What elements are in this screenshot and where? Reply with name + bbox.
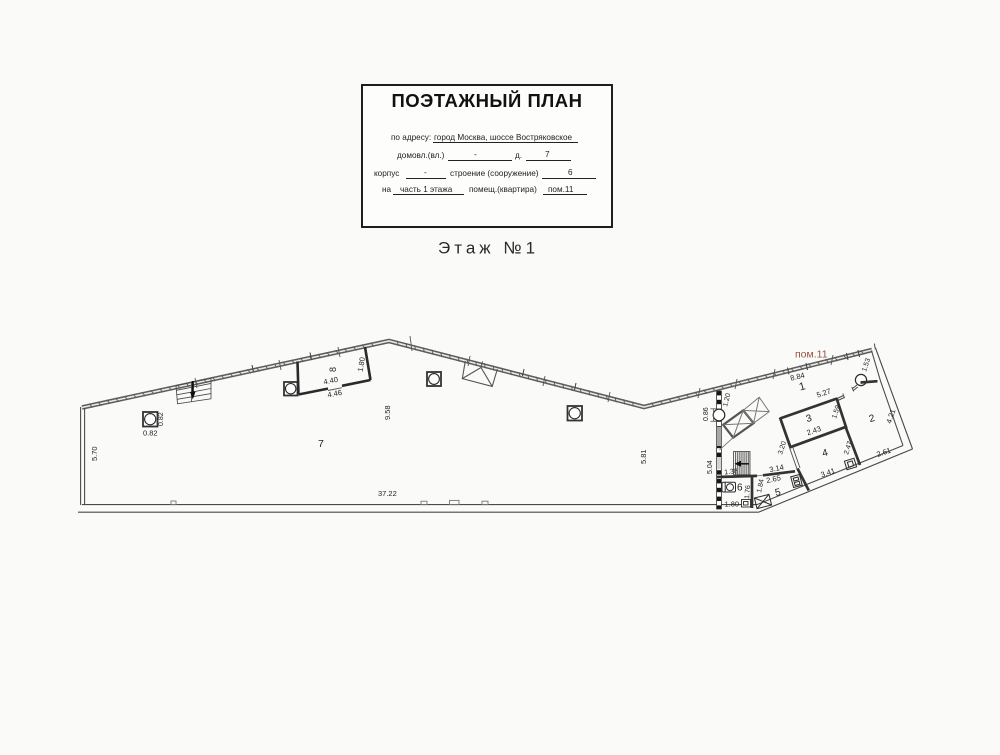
svg-text:пом.11: пом.11 <box>795 349 828 361</box>
svg-text:д.: д. <box>515 151 522 160</box>
svg-text:5.27: 5.27 <box>815 386 832 399</box>
svg-text:7: 7 <box>318 438 324 450</box>
svg-text:5.81: 5.81 <box>639 449 648 464</box>
svg-text:37.22: 37.22 <box>378 489 397 498</box>
svg-text:на: на <box>382 185 392 194</box>
svg-text:6: 6 <box>568 168 573 177</box>
svg-text:3.20: 3.20 <box>777 440 788 455</box>
svg-text:часть 1 этажа: часть 1 этажа <box>400 185 453 194</box>
svg-text:9.58: 9.58 <box>383 405 392 420</box>
svg-text:1.20: 1.20 <box>722 392 732 407</box>
svg-text:2: 2 <box>868 413 877 425</box>
svg-text:-: - <box>474 150 477 159</box>
svg-text:8: 8 <box>328 367 338 372</box>
svg-text:4.40: 4.40 <box>323 375 339 387</box>
svg-text:1.53: 1.53 <box>861 357 872 372</box>
svg-text:6: 6 <box>737 483 743 494</box>
svg-text:2.65: 2.65 <box>765 473 781 485</box>
svg-text:город Москва, шоссе Востряковс: город Москва, шоссе Востряковское <box>434 133 573 142</box>
svg-text:1.80: 1.80 <box>725 500 740 509</box>
svg-text:0.82: 0.82 <box>158 412 165 426</box>
svg-text:1: 1 <box>798 380 807 393</box>
svg-text:пом.11: пом.11 <box>548 185 574 194</box>
svg-text:по адресу:: по адресу: <box>391 133 431 142</box>
svg-text:1.80: 1.80 <box>356 356 367 372</box>
svg-text:-: - <box>424 168 427 177</box>
svg-text:5.70: 5.70 <box>90 446 99 461</box>
svg-text:4: 4 <box>821 447 830 459</box>
svg-text:3.41: 3.41 <box>819 466 836 479</box>
svg-text:2.61: 2.61 <box>875 446 892 459</box>
svg-text:7: 7 <box>545 150 550 159</box>
svg-text:корпус: корпус <box>374 169 399 178</box>
svg-text:0.82: 0.82 <box>143 429 158 438</box>
svg-text:4.46: 4.46 <box>327 388 343 400</box>
svg-text:3: 3 <box>805 413 814 425</box>
svg-text:5: 5 <box>774 487 782 499</box>
svg-text:домовл.(вл.): домовл.(вл.) <box>397 151 445 160</box>
svg-text:5.04: 5.04 <box>707 460 714 474</box>
svg-text:0.86: 0.86 <box>703 407 710 421</box>
svg-text:1.84: 1.84 <box>756 479 766 494</box>
svg-text:строение (сооружение): строение (сооружение) <box>450 169 539 178</box>
svg-text:Этаж №1: Этаж №1 <box>438 239 539 258</box>
svg-text:ПОЭТАЖНЫЙ ПЛАН: ПОЭТАЖНЫЙ ПЛАН <box>392 90 583 111</box>
svg-text:4.21: 4.21 <box>884 408 897 425</box>
svg-text:1.76: 1.76 <box>744 485 752 499</box>
svg-text:помещ.(квартира): помещ.(квартира) <box>469 185 537 194</box>
